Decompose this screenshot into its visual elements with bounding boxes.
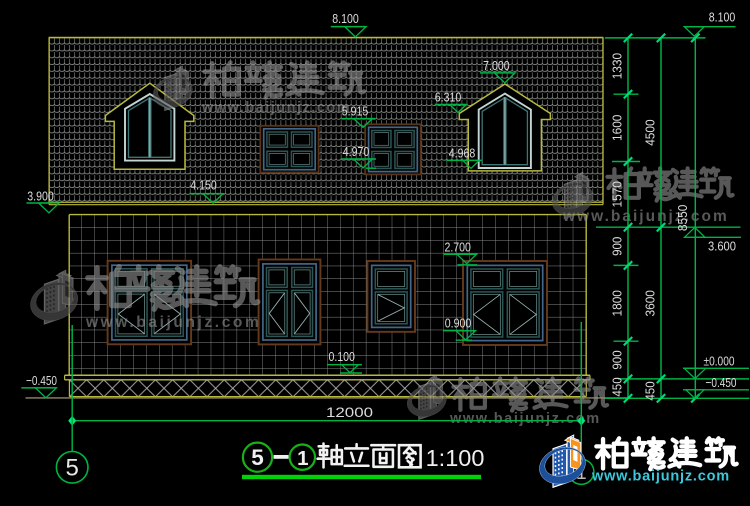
svg-text:4.150: 4.150 — [190, 178, 217, 193]
svg-text:450: 450 — [610, 377, 625, 396]
svg-text:5: 5 — [66, 455, 79, 482]
svg-text:1600: 1600 — [610, 115, 625, 141]
svg-text:www.baijunjz.com: www.baijunjz.com — [591, 469, 730, 485]
svg-text:7.000: 7.000 — [483, 58, 510, 73]
svg-text:8.100: 8.100 — [709, 10, 736, 25]
svg-text:1800: 1800 — [610, 290, 625, 316]
svg-text:3600: 3600 — [643, 290, 658, 316]
svg-text:www.baijunjz.com: www.baijunjz.com — [449, 411, 601, 427]
svg-text:1330: 1330 — [610, 53, 625, 79]
svg-text:900: 900 — [610, 350, 625, 369]
svg-text:8550: 8550 — [675, 205, 690, 231]
svg-text:2.700: 2.700 — [444, 239, 471, 254]
svg-text:www.baijunjz.com: www.baijunjz.com — [85, 314, 261, 331]
svg-text:−0.450: −0.450 — [26, 373, 57, 388]
svg-text:5: 5 — [251, 445, 264, 470]
svg-text:4.970: 4.970 — [343, 144, 370, 159]
svg-text:4500: 4500 — [643, 119, 658, 145]
svg-text:0.900: 0.900 — [445, 316, 472, 331]
svg-text:±0.000: ±0.000 — [704, 353, 735, 368]
svg-text:3.600: 3.600 — [708, 239, 736, 254]
svg-text:www.baijunjz.com: www.baijunjz.com — [201, 100, 351, 116]
svg-text:12000: 12000 — [326, 405, 373, 420]
svg-text:−0.450: −0.450 — [706, 375, 737, 390]
svg-text:1570: 1570 — [610, 181, 625, 207]
svg-text:900: 900 — [610, 237, 625, 256]
svg-text:6.310: 6.310 — [435, 90, 462, 105]
svg-text:4.968: 4.968 — [449, 146, 476, 161]
svg-text:1: 1 — [297, 447, 308, 470]
svg-text:450: 450 — [643, 381, 658, 400]
svg-text:1:100: 1:100 — [426, 445, 485, 471]
svg-text:5.915: 5.915 — [342, 104, 369, 119]
svg-text:3.900: 3.900 — [27, 189, 54, 204]
svg-text:0.100: 0.100 — [328, 349, 355, 364]
svg-text:8.100: 8.100 — [332, 11, 359, 26]
svg-text:www.baijunjz.com: www.baijunjz.com — [562, 208, 729, 225]
